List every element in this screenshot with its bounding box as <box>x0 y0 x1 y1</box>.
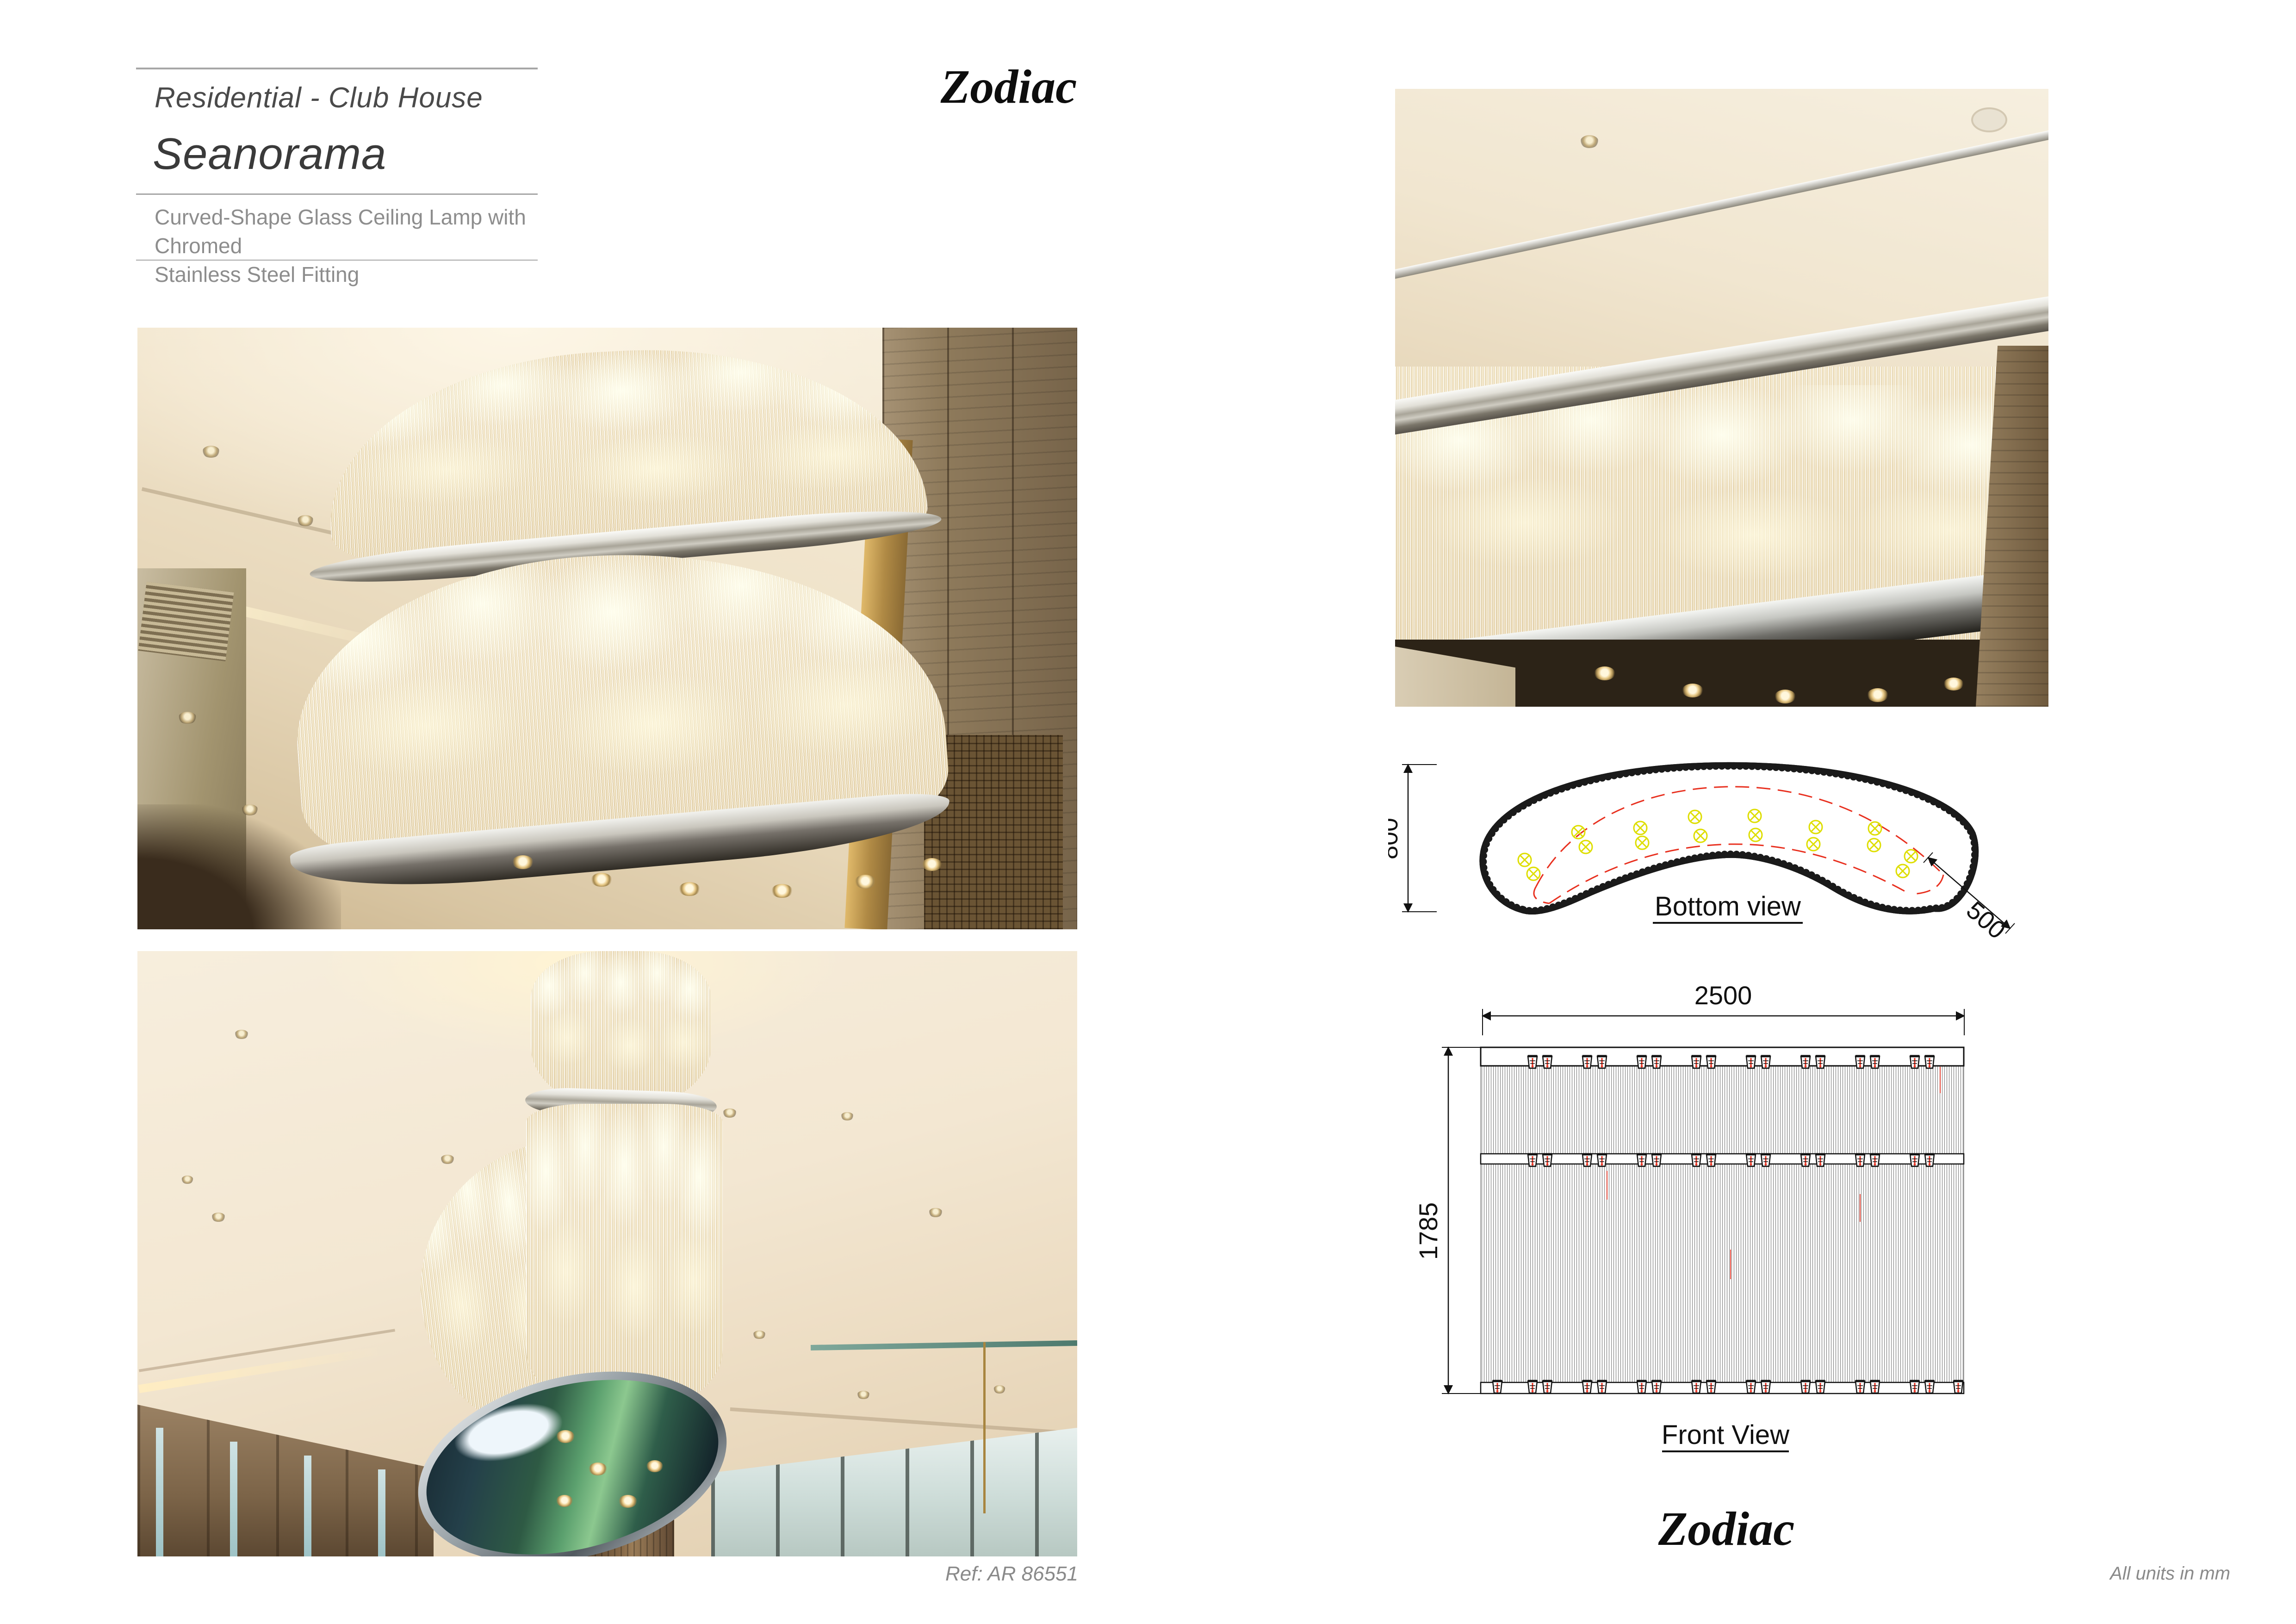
dimension-depth-value: 500 <box>1961 896 2011 944</box>
lamp-symbol <box>1543 1381 1552 1393</box>
ceiling-downlight <box>441 1155 454 1164</box>
lamp-symbol <box>1746 1154 1756 1166</box>
downlight-glow <box>771 884 793 898</box>
strand-curtain-lower <box>1481 1164 1964 1382</box>
photo-closeup <box>1395 89 2048 707</box>
chandelier-body <box>526 1104 723 1409</box>
lamp-symbol <box>1706 1154 1716 1166</box>
lamp-symbol <box>1528 1381 1537 1393</box>
lamp-symbol <box>1528 1154 1537 1166</box>
lamp-symbol <box>1582 1056 1592 1068</box>
front-view-drawing: 2500 1785 Front View <box>1407 972 2078 1490</box>
photo-installation-wide <box>137 328 1077 929</box>
dimension-width-value: 2500 <box>1694 981 1752 1010</box>
lamp-symbol <box>1582 1154 1592 1166</box>
ceiling-downlight <box>993 1385 1005 1394</box>
lamp-symbol <box>1801 1056 1810 1068</box>
middle-band <box>1481 1154 1964 1164</box>
lamp-symbol <box>1816 1381 1825 1393</box>
ceiling-downlight <box>753 1331 766 1339</box>
catalog-page: Residential - Club House Seanorama Curve… <box>0 0 2296 1624</box>
reference-number: Ref: AR 86551 <box>847 1562 1078 1586</box>
downlight-glow <box>589 1462 607 1475</box>
ceiling-downlight <box>178 712 197 724</box>
lamp-symbol <box>1925 1154 1934 1166</box>
lamp-symbol <box>1855 1056 1865 1068</box>
bottom-view-label: Bottom view <box>1655 891 1801 921</box>
window-slit <box>156 1428 163 1556</box>
header-rule-top <box>136 68 538 69</box>
photo-view-from-below <box>137 951 1077 1556</box>
lamp-symbol <box>1637 1381 1646 1393</box>
lamp-symbol <box>1637 1056 1646 1068</box>
lamp-symbol <box>1801 1154 1810 1166</box>
lamp-symbol <box>1816 1056 1825 1068</box>
bottom-view-drawing: 800 500 Bottom view <box>1388 740 2082 1000</box>
lamp-symbol <box>1746 1056 1756 1068</box>
lamp-symbol <box>1761 1381 1770 1393</box>
chandelier-top-cylinder <box>531 951 711 1108</box>
ceiling-downlight <box>929 1208 943 1217</box>
window-slit <box>230 1442 237 1556</box>
lamp-symbol <box>1493 1381 1502 1393</box>
lamp-symbol <box>1925 1381 1934 1393</box>
light-wave-pattern <box>526 1104 723 1409</box>
description-line-2: Stainless Steel Fitting <box>155 260 543 289</box>
lamp-symbol <box>1761 1056 1770 1068</box>
window-slit <box>378 1469 385 1556</box>
lamp-symbol <box>1816 1154 1825 1166</box>
light-wave-pattern <box>531 951 711 1108</box>
chandelier <box>295 337 961 920</box>
ceiling-downlight <box>1580 135 1599 148</box>
downlight-glow <box>922 858 942 871</box>
lamp-symbol <box>1652 1381 1661 1393</box>
lamp-symbol <box>1910 1056 1919 1068</box>
lamp-symbol <box>1652 1056 1661 1068</box>
downlight-glow <box>679 882 700 896</box>
lamp-symbol <box>1692 1154 1701 1166</box>
lamp-symbol <box>1692 1381 1701 1393</box>
lamp-symbol <box>1925 1056 1934 1068</box>
top-mounting-plate <box>1481 1047 1964 1066</box>
lamp-symbol <box>1582 1381 1592 1393</box>
downlight-glow <box>1943 678 1964 691</box>
downlight-glow <box>855 875 876 889</box>
downlight-glow <box>1594 666 1615 680</box>
lamp-symbol <box>1597 1056 1607 1068</box>
lamp-symbol <box>1801 1381 1810 1393</box>
downlight-glow <box>1775 690 1796 703</box>
lamp-symbol <box>1706 1056 1716 1068</box>
product-description: Curved-Shape Glass Ceiling Lamp with Chr… <box>155 203 543 289</box>
downlight-glow <box>1682 684 1703 697</box>
pendant-rod <box>983 1342 986 1513</box>
lamp-symbol <box>1597 1381 1607 1393</box>
lamp-symbol <box>1706 1381 1716 1393</box>
ceiling-downlight <box>202 446 220 458</box>
air-vent-louver <box>138 582 234 661</box>
description-line-1: Curved-Shape Glass Ceiling Lamp with Chr… <box>155 203 543 260</box>
units-note: All units in mm <box>2036 1563 2230 1584</box>
dimension-height-value: 800 <box>1388 818 1403 859</box>
brand-logo-bottom: Zodiac <box>1636 1501 1817 1556</box>
lamp-symbol <box>1855 1154 1865 1166</box>
lamp-symbol <box>1910 1381 1919 1393</box>
lamp-symbol <box>1637 1154 1646 1166</box>
ceiling-downlight <box>723 1108 737 1118</box>
lamp-symbol <box>1652 1154 1661 1166</box>
brand-logo-top: Zodiac <box>918 59 1099 114</box>
front-view-label: Front View <box>1662 1420 1790 1450</box>
lamp-symbol <box>1910 1154 1919 1166</box>
bottom-band <box>1481 1382 1964 1394</box>
downlight-glow <box>556 1495 573 1507</box>
lamp-symbol <box>1746 1381 1756 1393</box>
lamp-symbol <box>1870 1381 1880 1393</box>
lamp-symbol <box>1954 1381 1963 1393</box>
dimension-height-value: 1785 <box>1414 1202 1443 1260</box>
ceiling-downlight <box>857 1391 870 1399</box>
downlight-glow <box>619 1495 637 1508</box>
ceiling-downlight <box>242 804 258 815</box>
header-rule-middle <box>136 193 538 195</box>
lamp-symbol <box>1692 1056 1701 1068</box>
ceiling-downlight <box>211 1213 225 1222</box>
lamp-symbol <box>1597 1154 1607 1166</box>
lamp-symbol <box>1543 1056 1552 1068</box>
ceiling-speaker <box>1971 107 2007 132</box>
ceiling-downlight <box>841 1112 854 1120</box>
lamp-symbol <box>1870 1056 1880 1068</box>
lamp-symbol <box>1543 1154 1552 1166</box>
window-slit <box>304 1456 311 1556</box>
lamp-symbol <box>1855 1381 1865 1393</box>
downlight-glow <box>591 873 612 887</box>
ceiling-downlight <box>235 1030 248 1039</box>
downlight-glow <box>556 1430 575 1443</box>
header-rule-bottom <box>136 260 538 261</box>
product-name: Seanorama <box>153 129 386 180</box>
strand-curtain-upper <box>1481 1066 1964 1154</box>
downlight-glow <box>512 855 534 869</box>
category-label: Residential - Club House <box>155 81 483 114</box>
downlight-glow <box>646 1460 663 1472</box>
downlight-glow <box>1867 688 1888 702</box>
ceiling-downlight <box>181 1176 193 1184</box>
lamp-symbol <box>1870 1154 1880 1166</box>
lamp-symbol <box>1528 1056 1537 1068</box>
lamp-symbol <box>1761 1154 1770 1166</box>
